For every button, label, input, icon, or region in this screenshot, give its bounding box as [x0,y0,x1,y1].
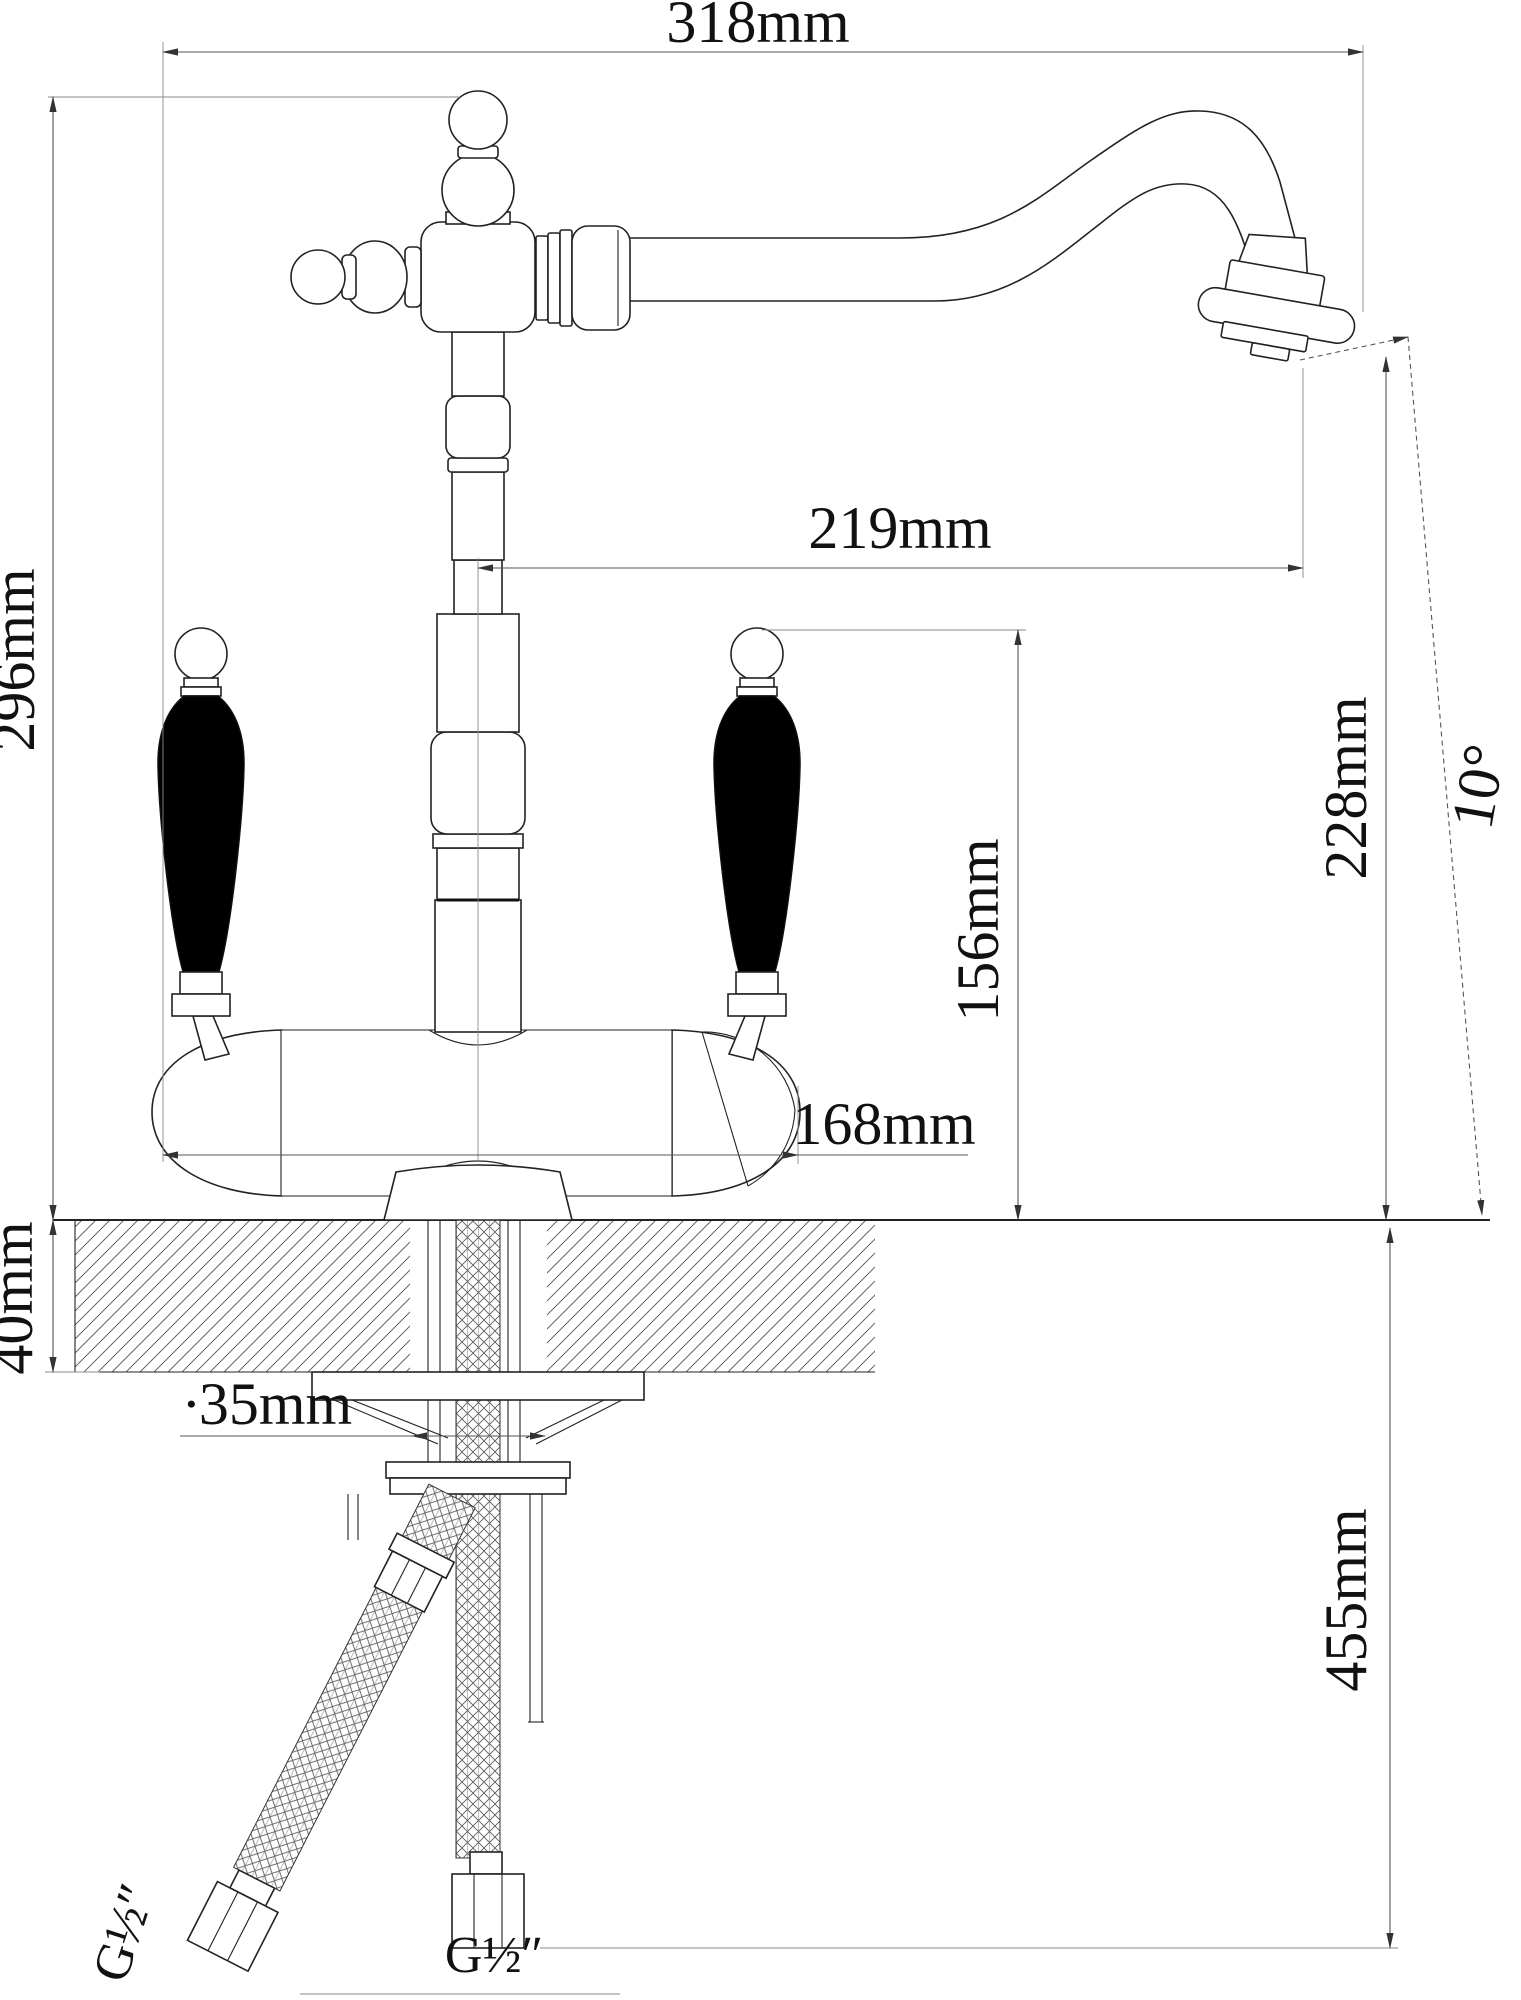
mounting-flange [312,1372,644,1400]
finial-bulb [442,154,514,226]
spout [629,111,1368,372]
riser-end-collar [470,1852,502,1874]
spout-rib [548,233,560,323]
label-hose-length: 455mm [1313,1508,1379,1691]
handle-ferrule [180,972,222,994]
braided-riser-hose [456,1218,500,1858]
slanted-supply-hose [187,1481,482,1972]
handle-grip [714,696,800,972]
finial-ball [449,91,507,149]
label-overall-height: 296mm [0,568,47,751]
right-handle [714,628,800,1060]
handle-ball [731,628,783,680]
label-supply-thread: G½″ [82,1877,167,1988]
cone-line [526,1400,604,1438]
handle-flange [728,994,786,1016]
column-section [452,332,504,396]
faucet-dimension-drawing: 318mm 296mm 219mm 228mm 10° 156mm 168mm … [0,0,1521,2000]
handle-ring [737,687,777,696]
countertop-section [53,1216,1490,1376]
extension-lines [45,42,1398,1994]
label-mount-thickness: 40mm [0,1221,45,1374]
column-barrel-upper [446,396,510,458]
tee-body [421,222,535,332]
handle-ball [175,628,227,680]
label-filter-thread: G½″ [445,1927,543,1984]
drawing-sheet: 318mm 296mm 219mm 228mm 10° 156mm 168mm … [0,0,1521,2000]
spout-tube [629,111,1296,301]
spout-rib [560,230,572,326]
cone-line [536,1400,622,1444]
top-tee [291,91,630,332]
handle-ring [181,687,221,696]
base-pedestal [384,1165,572,1220]
handle-ferrule [736,972,778,994]
column-ring [448,458,508,472]
label-handle-height: 156mm [945,838,1011,1021]
spout-collar [572,226,630,330]
handle-ring [740,678,774,687]
cone-line [352,1400,448,1438]
mounting-nut-lower [390,1478,566,1494]
faucet-body [152,1030,800,1220]
label-overall-width: 318mm [666,0,849,55]
aerator-assembly [1191,222,1368,372]
label-spout-outlet-height: 228mm [1313,696,1379,879]
spout-rib [536,236,548,320]
handle-grip [158,696,244,972]
handle-flange [172,994,230,1016]
column-section [452,472,504,560]
left-handle [158,628,244,1060]
mounting-nut-upper [386,1462,570,1478]
label-body-width: 168mm [792,1091,975,1157]
handle-ring [184,678,218,687]
side-lever-ball [291,250,345,304]
label-spout-reach: 219mm [808,495,991,561]
label-aerator-angle: 10° [1439,739,1519,833]
label-hole-diameter: ∙35mm [184,1371,352,1437]
